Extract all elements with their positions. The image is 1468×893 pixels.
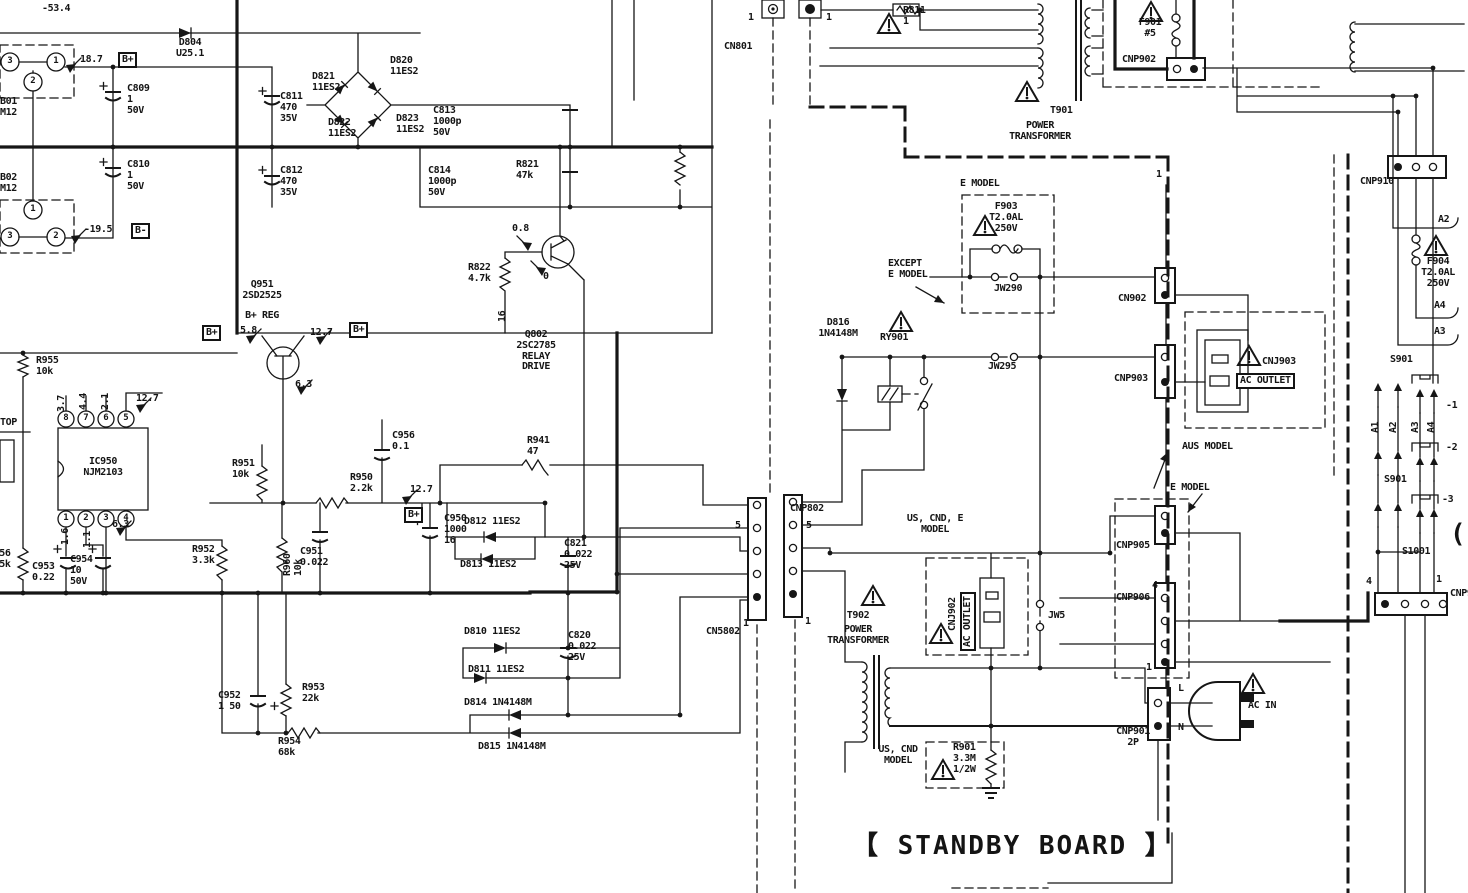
- schematic-labels: -53.4D804 U25.118.7B+C809 1 50VB01 M12B0…: [0, 0, 1468, 893]
- voltage-6-3b: 6.3: [112, 520, 129, 531]
- jack1-pin-1: 1: [53, 57, 58, 67]
- fuse-f904: F904 T2.0AL 250V: [1421, 257, 1455, 289]
- res-r951: R951 10k: [232, 459, 254, 481]
- res-r950: R950 2.2k: [350, 473, 372, 495]
- bplus-badge-top: B+: [118, 52, 137, 68]
- wire-a1-rot: A1: [1371, 422, 1382, 433]
- label-top: TOP: [0, 418, 17, 429]
- ic-pin-8: 8: [63, 414, 68, 424]
- pin1-bottom-conn: 1: [1436, 575, 1442, 586]
- conn-cnp802: CNP802: [790, 504, 824, 515]
- pin4-cnp906: 4: [1152, 581, 1158, 592]
- res-r821: R821 47k: [516, 160, 538, 182]
- wire-a4-rot: A4: [1427, 422, 1438, 433]
- trans-q951-fn: B+ REG: [245, 311, 279, 322]
- voltage-1-1: 1.1: [83, 531, 94, 548]
- voltage-3-7: 3.7: [57, 395, 68, 412]
- diode-d821: D821 11ES2: [312, 72, 340, 94]
- diode-d814: D814 1N4148M: [464, 698, 531, 709]
- jumper-jw290: JW290: [994, 284, 1022, 295]
- jack-b01: B01 M12: [0, 97, 17, 119]
- voltage-6-3a: 6.3: [295, 380, 312, 391]
- jack1-pin-2: 2: [30, 77, 35, 87]
- wire-a2: A2: [1438, 215, 1449, 226]
- ac-outlet-aus: AC OUTLET: [1236, 373, 1295, 389]
- conn-cnp903: CNP903: [1114, 374, 1148, 385]
- right-edge-bracket: (: [1450, 520, 1468, 548]
- res-r901: R901 3.3M 1/2W: [953, 743, 975, 775]
- ic-ic950: IC950 NJM2103: [83, 457, 122, 479]
- ic-pin-6: 6: [103, 414, 108, 424]
- diode-d811: D811 11ES2: [468, 665, 524, 676]
- conn-cnp902: CNP902: [1122, 55, 1156, 66]
- pin1-cn902: 1: [1156, 170, 1162, 181]
- conn-cnj902: CNJ902: [948, 597, 959, 631]
- cap-c954: C954 10 50V: [70, 555, 92, 587]
- voltage-12-7a: 12.7: [310, 328, 332, 339]
- line-l: L: [1178, 684, 1184, 695]
- diode-d813: D813 11ES2: [460, 560, 516, 571]
- ac-in: AC IN: [1248, 701, 1276, 712]
- jack2-pin-3: 3: [7, 232, 12, 242]
- sw-section-3: -3: [1442, 495, 1453, 506]
- res-r956: R956 5.5k: [0, 549, 10, 571]
- jumper-jw295: JW295: [988, 362, 1016, 373]
- fuse-f901: F901 #5: [1139, 18, 1161, 40]
- diode-d822: D822 11ES2: [328, 118, 356, 140]
- ic-pin-1: 1: [63, 514, 68, 524]
- voltage-16: 16: [498, 311, 509, 322]
- sw-section-2: -2: [1446, 443, 1457, 454]
- ic-pin-5: 5: [123, 414, 128, 424]
- res-r953: R953 22k: [302, 683, 324, 705]
- diode-d804: D804 U25.1: [176, 38, 204, 60]
- voltage-0: 0: [543, 272, 549, 283]
- cap-c812: C812 470 35V: [280, 166, 302, 198]
- cap-c952: C952 1 50: [218, 691, 240, 713]
- res-r952: R952 3.3k: [192, 545, 214, 567]
- conn-cn902: CN902: [1118, 294, 1146, 305]
- line-n: N: [1178, 723, 1184, 734]
- us-cnd-e-model: US, CND, E MODEL: [907, 514, 963, 536]
- jack2-pin-2: 2: [53, 232, 58, 242]
- pin4-bottom-conn: 4: [1366, 577, 1372, 588]
- pin5-cn5802: 5: [735, 521, 741, 532]
- us-cnd-model: US, CND MODEL: [878, 745, 917, 767]
- conn-cnp9-cut: CNP9: [1450, 589, 1468, 600]
- jack-b02: B02 M12: [0, 173, 17, 195]
- switch-s901: S901: [1390, 355, 1412, 366]
- diode-d816: D816 1N4148M: [818, 318, 857, 340]
- cap-c814: C814 1000p 50V: [428, 166, 456, 198]
- xfmr-t901: T901: [1050, 106, 1072, 117]
- res-r954: R954 68k: [278, 737, 300, 759]
- cap-c953: C953 0.22: [32, 562, 54, 584]
- voltage-4-4: 4.4: [79, 393, 90, 410]
- diode-d823: D823 11ES2: [396, 114, 424, 136]
- conn-cn801: CN801: [724, 42, 752, 53]
- voltage-0-8: 0.8: [512, 224, 529, 235]
- bplus-badge-a: B+: [202, 325, 221, 341]
- conn-cnp905: CNP905: [1116, 541, 1150, 552]
- res-r941: R941 47: [527, 436, 549, 458]
- jumper-jw5: JW5: [1048, 611, 1065, 622]
- bminus-badge: B-: [131, 223, 150, 239]
- res-r822: R822 4.7k: [468, 263, 490, 285]
- aus-model: AUS MODEL: [1182, 442, 1233, 453]
- ic-pin-7: 7: [83, 414, 88, 424]
- pin1-cn801a: 1: [748, 13, 754, 24]
- conn-cnp906: CNP906: [1116, 593, 1150, 604]
- bplus-badge-c: B+: [404, 507, 423, 523]
- cap-c821: C821 0.022 25V: [564, 539, 592, 571]
- cap-c810: C810 1 50V: [127, 160, 149, 192]
- voltage-12-7c: 12.7: [136, 394, 158, 405]
- cap-c809: C809 1 50V: [127, 84, 149, 116]
- diode-d810: D810 11ES2: [464, 627, 520, 638]
- voltage-12-7b: 12.7: [410, 485, 432, 496]
- diode-d820: D820 11ES2: [390, 56, 418, 78]
- diode-d815: D815 1N4148M: [478, 742, 545, 753]
- voltage--53-4: -53.4: [42, 4, 70, 15]
- switch-s901-b: S901: [1384, 475, 1406, 486]
- res-r811: R811 1: [903, 6, 925, 28]
- cap-c811: C811 470 35V: [280, 92, 302, 124]
- wire-a4: A4: [1434, 301, 1445, 312]
- ic-pin-3: 3: [103, 514, 108, 524]
- ic-pin-2: 2: [83, 514, 88, 524]
- conn-cnj903: CNJ903: [1262, 357, 1296, 368]
- xfmr-t902: T902: [847, 611, 869, 622]
- trans-q951: Q951 2SD2525: [242, 280, 281, 302]
- xfmr-t902-name: POWER TRANSFORMER: [827, 625, 889, 647]
- diode-d812: D812 11ES2: [464, 517, 520, 528]
- wire-a3-rot: A3: [1411, 422, 1422, 433]
- conn-cnp910: CNP910: [1360, 177, 1394, 188]
- jack1-pin-3: 3: [7, 57, 12, 67]
- bplus-badge-b: B+: [349, 322, 368, 338]
- cap-c951: C951 0.022: [300, 547, 328, 569]
- schematic-page: -53.4D804 U25.118.7B+C809 1 50VB01 M12B0…: [0, 0, 1468, 893]
- emodel-1: E MODEL: [960, 179, 999, 190]
- voltage-2-1: 2.1: [101, 393, 112, 410]
- voltage-18-7: 18.7: [80, 55, 102, 66]
- jack2-pin-1: 1: [30, 205, 35, 215]
- except-emodel: EXCEPT E MODEL: [888, 259, 927, 281]
- standby-board-title: 【 STANDBY BOARD 】: [852, 832, 1173, 860]
- cap-c956: C956 0.1: [392, 431, 414, 453]
- voltage-1-6: 1.6: [61, 528, 72, 545]
- wire-a3: A3: [1434, 327, 1445, 338]
- emodel-2: E MODEL: [1170, 483, 1209, 494]
- pin1-cn801b: 1: [826, 13, 832, 24]
- conn-cn5802: CN5802: [706, 627, 740, 638]
- voltage-5-8: 5.8: [240, 326, 257, 337]
- cap-c820: C820 0.022 25V: [568, 631, 596, 663]
- voltage--19-5: -19.5: [84, 225, 112, 236]
- res-r955: R955 10k: [36, 356, 58, 378]
- ac-outlet-us: AC OUTLET: [960, 592, 976, 651]
- pin1-cn5802: 1: [743, 619, 749, 630]
- fuse-f903: F903 T2.0AL 250V: [989, 202, 1023, 234]
- wire-a2-rot: A2: [1389, 422, 1400, 433]
- pin1-cnp906: 1: [1146, 663, 1152, 674]
- xfmr-t901-name: POWER TRANSFORMER: [1009, 121, 1071, 143]
- pin5-cnp802: 5: [806, 521, 812, 532]
- conn-cnp901: CNP901 2P: [1116, 727, 1150, 749]
- sw-section-1: -1: [1446, 401, 1457, 412]
- switch-s1001: S1001: [1402, 547, 1430, 558]
- trans-q802: Q802 2SC2785 RELAY DRIVE: [516, 330, 555, 373]
- cap-c813: C813 1000p 50V: [433, 106, 461, 138]
- relay-ry901: RY901: [880, 333, 908, 344]
- pin1-cnp802: 1: [805, 617, 811, 628]
